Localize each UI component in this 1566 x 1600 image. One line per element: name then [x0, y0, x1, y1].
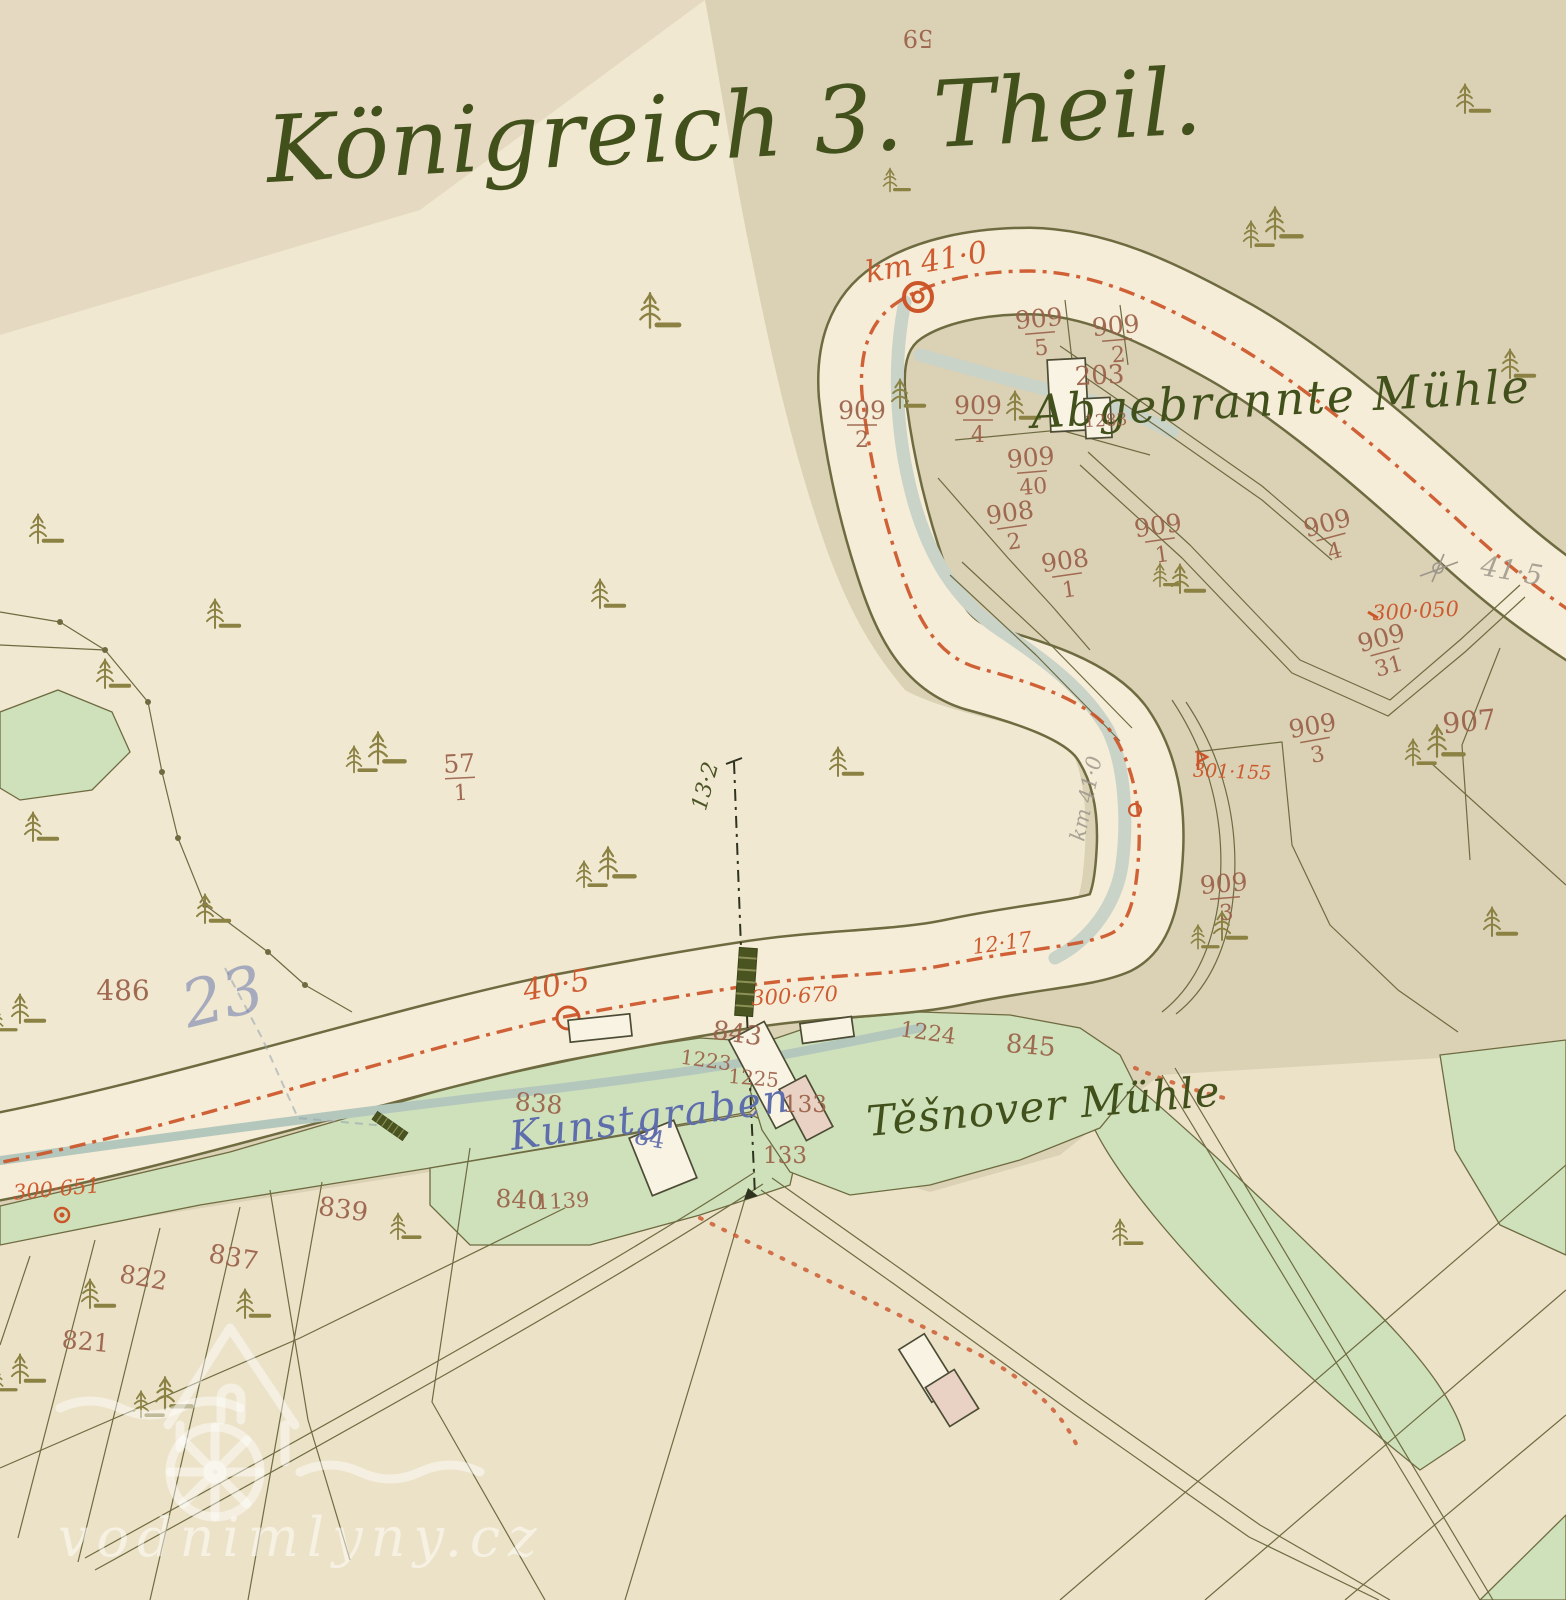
parcel-number-label: 1139	[535, 1188, 590, 1215]
parcel-number-label: 907	[1441, 703, 1497, 741]
parcel-number-label: 838	[514, 1087, 564, 1120]
parcel-number-label: 84	[632, 1122, 667, 1155]
svg-text:909: 909	[1006, 441, 1056, 474]
svg-text:3: 3	[1218, 900, 1234, 926]
red-route-label: 300·050	[1372, 597, 1460, 626]
historic-cadastral-map-scan: Königreich 3. Theil. Abgebrannte Mühle T…	[0, 0, 1566, 1600]
parcel-number-label: 845	[1005, 1029, 1057, 1063]
watermark-text: vodnimlyny.cz	[58, 1506, 545, 1569]
svg-text:5: 5	[1033, 335, 1049, 361]
parcel-number-label: 1283	[1084, 410, 1128, 432]
map-canvas: Königreich 3. Theil. Abgebrannte Mühle T…	[0, 0, 1566, 1600]
svg-text:909: 909	[1014, 302, 1064, 335]
red-route-label: 301·155	[1193, 760, 1272, 785]
svg-text:909: 909	[1199, 867, 1249, 900]
parcel-number-label: 486	[96, 974, 149, 1007]
svg-text:909: 909	[838, 396, 886, 425]
red-route-label: 300·670	[751, 982, 839, 1011]
svg-text:4: 4	[971, 423, 985, 448]
svg-text:909: 909	[954, 391, 1002, 420]
parcel-number-label: 133	[763, 1143, 807, 1169]
parcel-number-label: 133	[783, 1092, 827, 1118]
parcel-number-label: 821	[61, 1325, 111, 1358]
svg-text:2: 2	[855, 428, 869, 453]
svg-text:909: 909	[1091, 309, 1141, 342]
parcel-number-label: 203	[1074, 360, 1125, 393]
svg-text:1: 1	[453, 781, 468, 807]
parcel-number-label: 59	[903, 24, 934, 52]
parcel-number-label: 1225	[727, 1064, 780, 1092]
svg-text:57: 57	[443, 748, 476, 779]
